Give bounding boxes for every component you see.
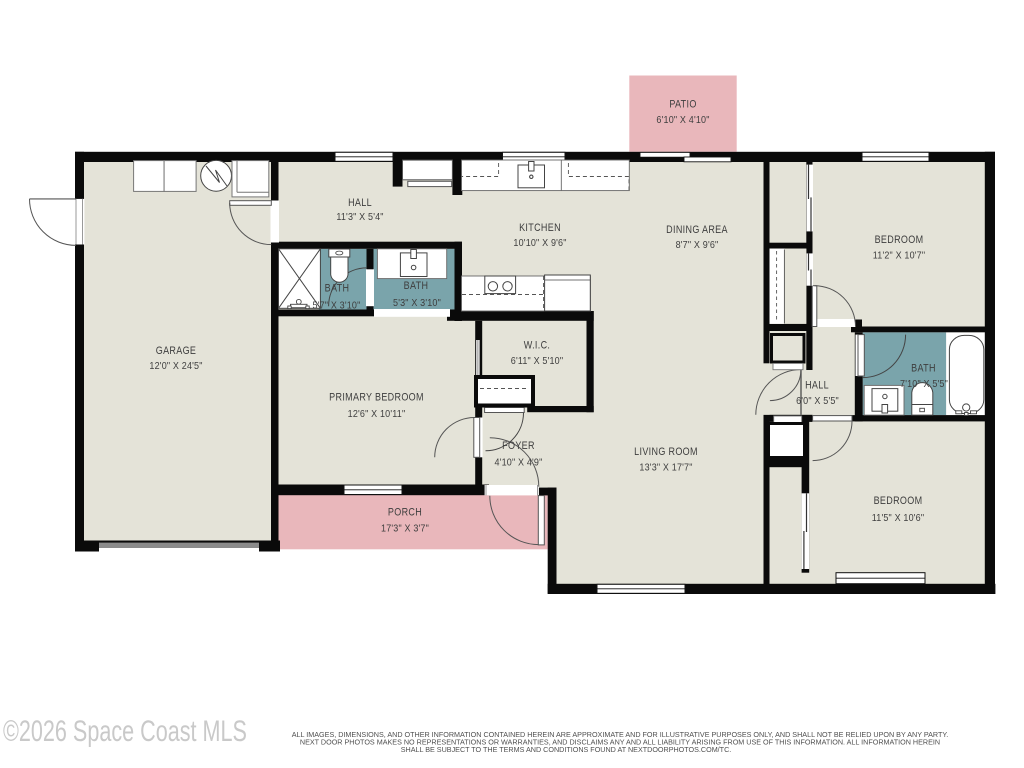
svg-text:BEDROOM: BEDROOM [875,234,924,246]
svg-text:12'0" X 24'5": 12'0" X 24'5" [149,361,202,373]
svg-text:8'7" X 9'6": 8'7" X 9'6" [676,240,719,252]
svg-text:17'3" X 3'7": 17'3" X 3'7" [381,523,429,535]
svg-text:13'3" X 17'7": 13'3" X 17'7" [639,462,692,474]
svg-text:BATH: BATH [325,283,350,295]
svg-text:4'10" X 4'9": 4'10" X 4'9" [495,457,543,469]
svg-text:©2026 Space Coast MLS: ©2026 Space Coast MLS [3,713,247,747]
svg-text:6'0" X 5'5": 6'0" X 5'5" [796,396,839,408]
svg-text:11'2" X 10'7": 11'2" X 10'7" [873,250,925,262]
svg-text:11'5" X 10'6": 11'5" X 10'6" [872,513,924,525]
svg-text:HALL: HALL [348,197,372,209]
svg-text:SHALL BE SUBJECT TO THE TERMS: SHALL BE SUBJECT TO THE TERMS AND CONDIT… [401,745,732,754]
svg-text:PATIO: PATIO [669,99,696,111]
svg-text:KITCHEN: KITCHEN [519,222,561,234]
svg-text:W.I.C.: W.I.C. [524,340,550,352]
svg-text:GARAGE: GARAGE [156,345,197,357]
svg-text:10'10" X 9'6": 10'10" X 9'6" [513,238,566,250]
svg-text:BEDROOM: BEDROOM [874,495,923,507]
svg-text:PORCH: PORCH [388,507,422,519]
svg-text:6'11" X 5'10": 6'11" X 5'10" [511,356,563,368]
svg-text:DINING AREA: DINING AREA [666,224,728,236]
svg-text:7'10" X 5'5": 7'10" X 5'5" [900,379,948,391]
svg-text:BATH: BATH [404,280,429,292]
svg-text:LIVING ROOM: LIVING ROOM [634,446,698,458]
svg-text:5'3" X 3'10": 5'3" X 3'10" [393,298,441,310]
svg-text:FOYER: FOYER [502,440,535,452]
svg-text:12'6" X 10'11": 12'6" X 10'11" [348,409,406,421]
svg-text:5'7" X 3'10": 5'7" X 3'10" [313,300,361,312]
svg-text:6'10" X 4'10": 6'10" X 4'10" [656,115,709,127]
svg-text:BATH: BATH [911,363,936,375]
svg-text:HALL: HALL [805,380,829,392]
svg-text:11'3" X 5'4": 11'3" X 5'4" [336,212,383,224]
svg-text:PRIMARY BEDROOM: PRIMARY BEDROOM [329,392,424,404]
